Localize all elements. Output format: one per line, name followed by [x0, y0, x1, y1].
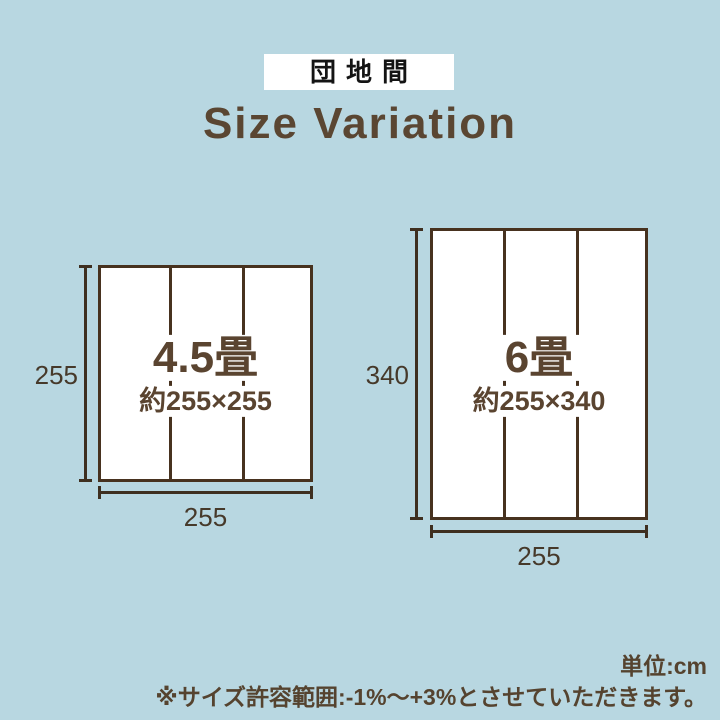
width-dimension-value: 255	[430, 543, 648, 569]
dimensions-label: 約255×340	[466, 386, 613, 417]
page-title: Size Variation	[0, 100, 720, 148]
width-dimension-line	[98, 491, 313, 494]
size-variation-diagram: 団地間 Size Variation 4.5畳 約255×255 255 255…	[0, 0, 720, 720]
height-dimension-value: 340	[357, 362, 409, 388]
height-dimension-line	[415, 228, 418, 520]
tatami-size-label: 4.5畳	[143, 334, 268, 380]
height-dimension-value: 255	[26, 362, 78, 388]
width-dimension-value: 255	[98, 504, 313, 530]
height-dimension-line	[84, 265, 87, 482]
mat-diagram-4-5jo: 4.5畳 約255×255	[98, 265, 313, 482]
dimensions-label: 約255×255	[132, 386, 279, 417]
tag-box: 団地間	[264, 54, 454, 90]
tag-label: 団地間	[300, 59, 418, 85]
width-dimension-line	[430, 530, 648, 533]
mat-labels-4-5jo: 4.5畳 約255×255	[132, 334, 279, 416]
mat-labels-6jo: 6畳 約255×340	[466, 335, 613, 417]
tatami-size-label: 6畳	[495, 335, 583, 381]
tolerance-note: ※サイズ許容範囲:-1%〜+3%とさせていただきます。	[155, 686, 707, 709]
mat-diagram-6jo: 6畳 約255×340	[430, 228, 648, 520]
unit-note: 単位:cm	[620, 655, 707, 678]
